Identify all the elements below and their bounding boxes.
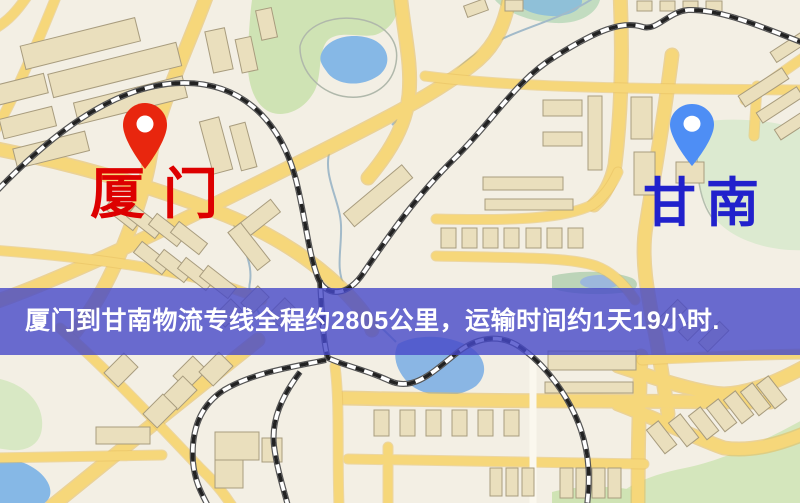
- destination-marker: [669, 103, 715, 172]
- route-info-text: 厦门到甘南物流专线全程约2805公里，运输时间约1天19小时.: [0, 288, 800, 355]
- logistics-route-map: 厦门 甘南 厦门到甘南物流专线全程约2805公里，运输时间约1天19小时.: [0, 0, 800, 503]
- destination-city-label: 甘南: [643, 177, 769, 230]
- origin-city-label: 厦门: [90, 167, 236, 222]
- blue-pin-icon: [669, 103, 715, 167]
- route-info-banner: 厦门到甘南物流专线全程约2805公里，运输时间约1天19小时.: [0, 288, 800, 355]
- red-pin-icon: [122, 102, 168, 170]
- map-canvas: [0, 0, 800, 503]
